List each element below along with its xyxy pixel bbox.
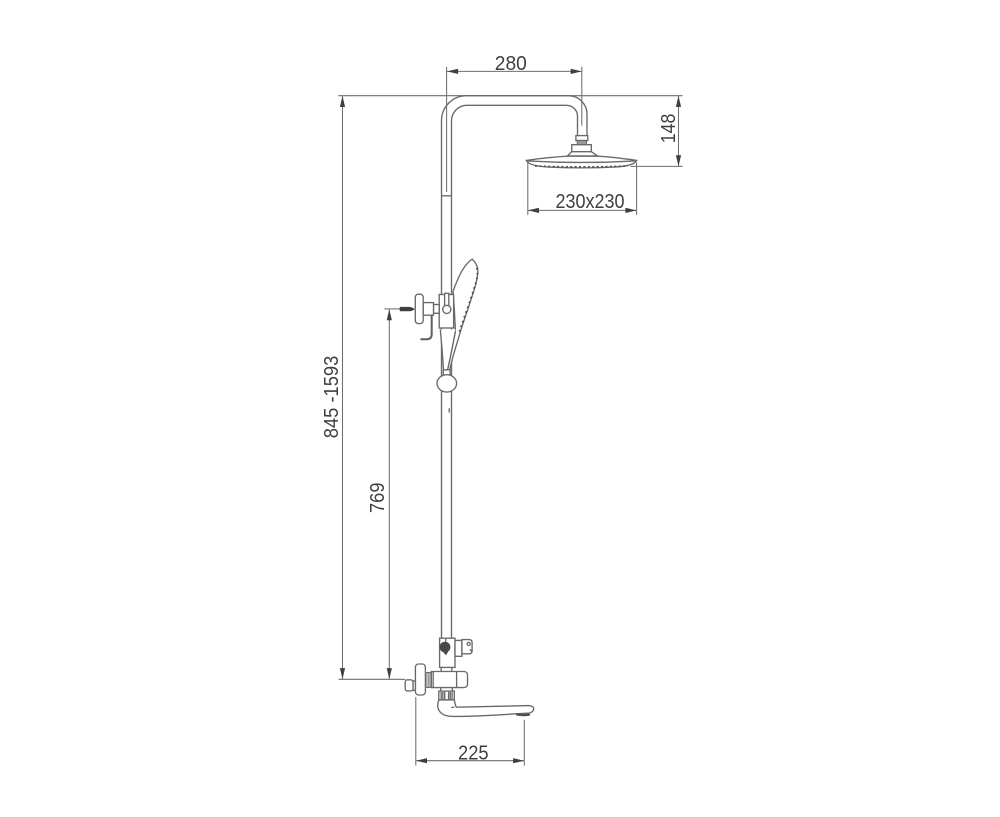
svg-text:845 -1593: 845 -1593 [321,356,343,439]
svg-text:280: 280 [495,53,527,75]
svg-text:225: 225 [458,743,489,765]
svg-text:148: 148 [658,114,680,144]
svg-text:230x230: 230x230 [556,191,625,213]
svg-text:769: 769 [367,483,389,514]
